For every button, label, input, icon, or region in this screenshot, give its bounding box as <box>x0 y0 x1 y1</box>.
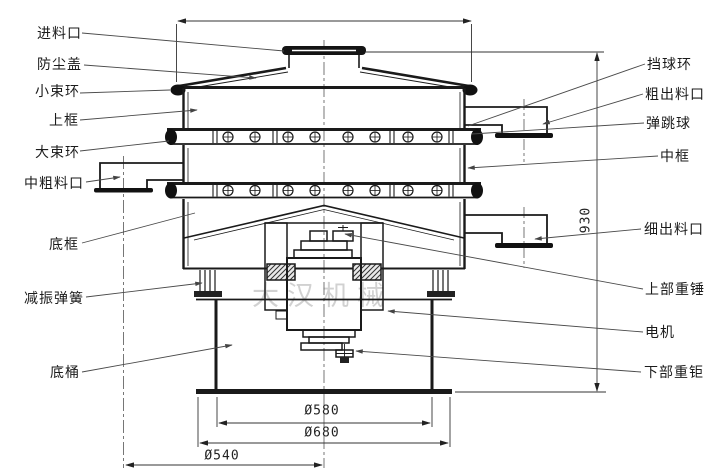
leader-left-outlet <box>86 177 120 182</box>
bouncing-balls-deck-2 <box>223 185 443 196</box>
upper-weight <box>294 225 353 258</box>
lower-weight <box>301 330 355 363</box>
leader-barrel <box>82 345 232 372</box>
label-upper-frame: 上框 <box>49 111 79 129</box>
leader-bottom-frame <box>82 213 195 243</box>
label-fine-outlet: 细出料口 <box>644 220 704 238</box>
label-small-clamp: 小束环 <box>35 82 80 100</box>
leader-motor <box>388 311 643 332</box>
leader-small-clamp <box>80 90 170 93</box>
mount-pad-left <box>267 264 295 280</box>
machine-diagram-svg: 大汉机械 <box>0 0 720 471</box>
leader-dust-cover <box>84 65 256 78</box>
label-upper-weight: 上部重锤 <box>645 280 705 298</box>
leader-upper-frame <box>80 110 197 120</box>
mount-pad-right <box>353 264 381 280</box>
vibrating-sieve-diagram: 大汉机械 <box>0 0 720 471</box>
dim-height-930: 930 <box>579 207 594 233</box>
label-lower-weight: 下部重钜 <box>644 363 704 381</box>
label-feed-inlet: 进料口 <box>37 24 82 42</box>
leader-lines <box>80 33 658 372</box>
dim-diameter-680: Ø680 <box>304 426 339 441</box>
label-middle-frame: 中框 <box>660 147 690 165</box>
label-bottom-frame: 底框 <box>49 235 79 253</box>
leader-lower-weight <box>356 351 641 372</box>
leader-middle-frame <box>468 156 658 168</box>
label-ball-ring: 挡球环 <box>647 55 692 73</box>
right-lower-outlet <box>465 215 553 248</box>
label-barrel: 底桶 <box>50 363 80 381</box>
leader-springs <box>86 283 202 297</box>
dim-diameter-540: Ø540 <box>204 449 239 464</box>
machine <box>94 46 553 394</box>
watermark-text: 大汉机械 <box>252 281 392 311</box>
bouncing-balls-deck-1 <box>223 132 443 143</box>
leader-large-clamp <box>80 141 169 151</box>
leader-feed-inlet <box>82 33 284 51</box>
label-springs: 减振弹簧 <box>24 289 84 307</box>
label-motor: 电机 <box>645 323 675 341</box>
label-coarse-outlet: 粗出料口 <box>645 85 705 103</box>
dim-diameter-580: Ø580 <box>304 404 339 419</box>
leader-ball-ring <box>468 64 645 126</box>
label-bouncing-ball: 弹跳球 <box>646 114 691 132</box>
label-dust-cover: 防尘盖 <box>37 55 82 73</box>
label-large-clamp: 大束环 <box>35 143 80 161</box>
label-left-outlet: 中粗料口 <box>24 174 84 192</box>
leader-coarse-outlet <box>543 94 643 124</box>
